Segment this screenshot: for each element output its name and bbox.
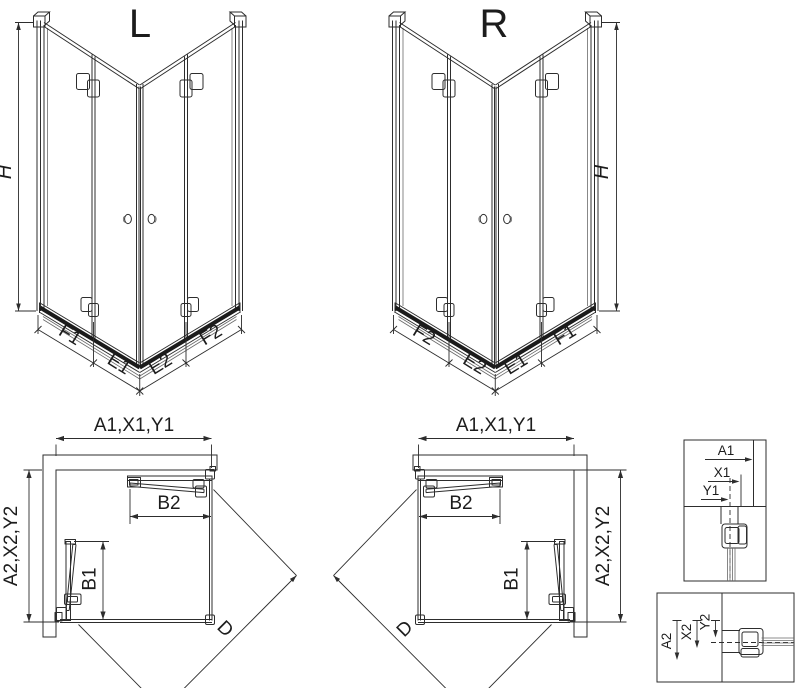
- plan-left-diagonal-label: D: [213, 617, 238, 642]
- plan-right-diagonal-label: D: [393, 617, 418, 642]
- profile-detail-top-profile: [721, 507, 747, 582]
- profile-detail-top-label-y1: Y1: [703, 483, 720, 498]
- iso-right-title: R: [480, 2, 509, 46]
- iso-left-edge-label-f2: F2: [196, 321, 226, 350]
- plan-view-left: A1,X1,Y1 A2,X2,Y2 B2 B1 D: [1, 415, 297, 688]
- profile-detail-top-label-a1: A1: [718, 443, 735, 458]
- plan-right-entry-top-label: B2: [449, 493, 472, 514]
- profile-detail-side-label-y2: Y2: [698, 614, 713, 631]
- profile-detail-top-label-x1: X1: [714, 465, 731, 480]
- iso-left-edge-label-f1: F1: [55, 321, 85, 350]
- plan-view-right: A1,X1,Y1 A2,X2,Y2 B2 B1 D: [334, 415, 627, 688]
- plan-left-entry-side-label: B1: [80, 567, 101, 590]
- plan-left-entry-top-label: B2: [157, 493, 180, 514]
- iso-right-height-label: H: [591, 164, 613, 179]
- iso-view-left: L H F1 E1 E2 F2: [0, 2, 246, 396]
- plan-right-width-label: A1,X1,Y1: [456, 415, 536, 436]
- profile-detail-side-label-x2: X2: [679, 624, 694, 641]
- iso-view-right: R H F2 E2 E1 F1: [389, 2, 620, 396]
- plan-right-entry-side-label: B1: [502, 567, 523, 590]
- profile-detail-top: A1 X1 Y1: [684, 440, 766, 581]
- iso-left-title: L: [129, 2, 151, 46]
- iso-right-edge-label-f2: F2: [409, 321, 439, 350]
- iso-left-height-label: H: [0, 164, 16, 179]
- profile-detail-side: A2 X2 Y2: [657, 593, 794, 682]
- plan-left-dimensions: [24, 436, 212, 622]
- plan-left-width-label: A1,X1,Y1: [94, 415, 174, 436]
- plan-left-depth-label: A2,X2,Y2: [1, 506, 22, 586]
- profile-detail-side-frame: [657, 593, 794, 682]
- profile-detail-side-profile: [722, 629, 794, 658]
- profile-detail-side-label-a2: A2: [659, 633, 674, 650]
- shower-enclosure-technical-drawing: L H F1 E1 E2 F2 R H F2 E2 E1 F1 A1,X1,Y1…: [0, 0, 800, 688]
- iso-right-edge-label-f1: F1: [550, 321, 580, 350]
- diagram-canvas: L H F1 E1 E2 F2 R H F2 E2 E1 F1 A1,X1,Y1…: [0, 0, 800, 688]
- plan-right-depth-label: A2,X2,Y2: [593, 506, 614, 586]
